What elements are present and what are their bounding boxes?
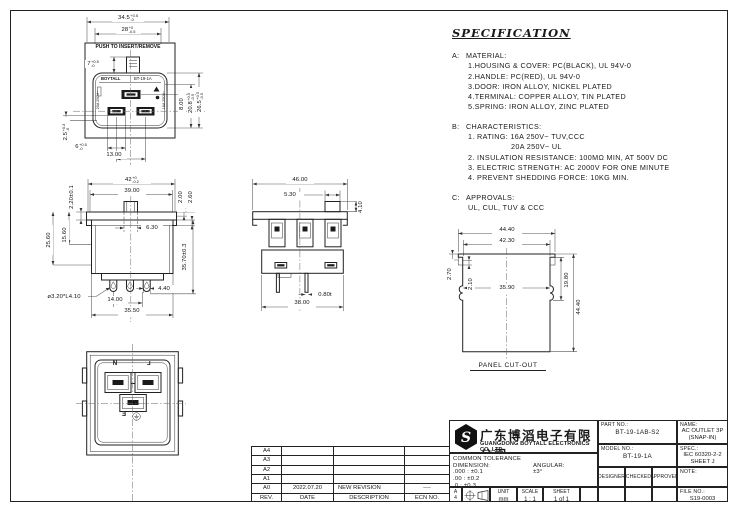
spec-cell: SPEC.: IEC 60320-2-2SHEET J bbox=[677, 444, 728, 467]
name-cell: NAME: AC OUTLET 3P(SNAP-IN) bbox=[677, 420, 728, 444]
file-no-cell: FILE NO.: S19-0003 bbox=[677, 487, 728, 502]
terminal-n bbox=[105, 373, 131, 393]
snap-tab bbox=[82, 368, 86, 383]
terminal-n-label: N bbox=[110, 361, 120, 367]
handle-tab bbox=[325, 202, 340, 212]
spec-section-characteristics: B:CHARACTERISTICS: 1. RATING: 16A 250V~ … bbox=[452, 122, 734, 184]
company-name-en: GUANGDONG BOYTALL ELECTRONICS CO.,LTD bbox=[480, 441, 597, 453]
rev-cell: A0 bbox=[251, 483, 281, 492]
revision-table: A4 A3 A2 A1 A02022.07.20NEW REVISION----… bbox=[251, 446, 449, 502]
dim-bottom-body-width: 38.00 bbox=[288, 300, 316, 308]
part-no-value: BT-19-1AB-S2 bbox=[599, 429, 676, 436]
spec-section-approvals: C:APPROVALS: UL, CUL, TUV & CCC bbox=[452, 193, 734, 214]
dim-cutout-inner-width: 42.30 bbox=[492, 237, 522, 245]
brand-label: BOYTALL bbox=[101, 76, 120, 81]
dim-cutout-notch: 2.70 bbox=[446, 259, 454, 289]
rev-cell: A1 bbox=[251, 474, 281, 483]
cert-mark-triangle bbox=[154, 87, 160, 92]
rev-cell: A2 bbox=[251, 465, 281, 474]
note-cell: NOTE: bbox=[677, 467, 728, 487]
rating-left-label: 20A 250V~ bbox=[96, 85, 100, 115]
dim-cutout-latch: 2.10 bbox=[467, 269, 475, 299]
dim-body-height: 35.70±0.3 bbox=[181, 238, 189, 276]
dim-edge-gap: 2.5+0.3-0 bbox=[62, 117, 70, 147]
dim-bottom-tab-height: 4.10 bbox=[357, 192, 365, 222]
body bbox=[262, 250, 344, 273]
angular-value: ±3° bbox=[533, 469, 542, 476]
specification-title: SPECIFICATION bbox=[452, 26, 734, 40]
unit-cell: UNITmm bbox=[490, 487, 517, 502]
dim-tab-width: 6.30 bbox=[141, 225, 163, 233]
dim-flange-thickness: 2.20±0.1 bbox=[68, 182, 76, 212]
dim-cutout-height: 44.40 bbox=[575, 291, 583, 323]
dim-pin-pitch: 14.00 bbox=[102, 296, 128, 304]
dim-cutout-outer-width: 44.40 bbox=[492, 226, 522, 234]
scale-cell: SCALE1 : 1 bbox=[517, 487, 543, 502]
terminal-l-label: L bbox=[144, 361, 154, 367]
dim-body-width: 35.50 bbox=[118, 308, 146, 316]
dim-slot-width: 6+0.5-0 bbox=[71, 143, 91, 151]
tolerance-title: COMMON TOLERANCE bbox=[453, 456, 597, 463]
designer-cell: DESIGNER bbox=[598, 467, 625, 487]
terminal-l bbox=[135, 373, 161, 393]
rear-view-drawing bbox=[70, 344, 192, 502]
approved-signature-cell bbox=[652, 487, 677, 502]
projection-symbol-cell bbox=[462, 487, 490, 502]
spec-line1: IEC 60320-2-2 bbox=[678, 452, 727, 459]
drawing-sheet: PUSH TO INSERT/REMOVE BOYTALL BT-19-1A 2… bbox=[0, 0, 738, 512]
projection-symbol-icon bbox=[463, 489, 490, 502]
sheet-cell: SHEET1 of 1 bbox=[543, 487, 580, 502]
dim-pin-size: ø3.20*L4.10 bbox=[40, 293, 88, 301]
dim-slot-offset: 8.00 bbox=[178, 89, 186, 119]
checked-signature-cell bbox=[625, 487, 652, 502]
ground-symbol bbox=[133, 413, 141, 421]
designer-signature-cell bbox=[598, 487, 625, 502]
push-to-insert-label: PUSH TO INSERT/REMOVE bbox=[95, 44, 161, 50]
panel-cutout-view: 44.40 42.30 2.70 2.10 35.90 19.80 44.40 … bbox=[442, 226, 594, 378]
name-line2: (SNAP-IN) bbox=[678, 435, 727, 442]
model-label: BT-19-1A bbox=[134, 76, 152, 81]
rev-header: REV. bbox=[251, 493, 281, 502]
name-line1: AC OUTLET 3P bbox=[678, 428, 727, 435]
socket-face bbox=[93, 73, 167, 128]
company-logo: S bbox=[453, 423, 479, 451]
rear-view: N L E bbox=[70, 344, 192, 502]
checked-cell: CHECKED bbox=[625, 467, 652, 487]
tolerance-cell: COMMON TOLERANCE DIMENSION:ANGULAR: .000… bbox=[449, 453, 598, 487]
dim-slot-pitch: 13.00 bbox=[101, 151, 127, 159]
terminal-leg bbox=[305, 273, 308, 292]
dim-face-inner-width: 28+0-0.5 bbox=[116, 26, 141, 34]
bottom-view: 46.00 5.30 4.10 0.80t 38.00 bbox=[248, 176, 374, 318]
flange bbox=[87, 212, 177, 220]
spec-line2: SHEET J bbox=[678, 459, 727, 466]
dim-cutout-latch-height: 19.80 bbox=[563, 264, 571, 296]
company-cell: S 广东博滔电子有限公司 GUANGDONG BOYTALL ELECTRONI… bbox=[449, 420, 598, 453]
rating-right-label: 16A 250V~ bbox=[162, 85, 166, 115]
strip-blank-cell bbox=[580, 487, 598, 502]
dim-terminal-thickness: 0.80t bbox=[312, 291, 338, 299]
model-no-cell: MODEL NO.: BT-19-1A bbox=[598, 444, 677, 467]
dim-face-height: 26.5+0.5-0.5 bbox=[196, 87, 204, 117]
terminal-e bbox=[120, 395, 147, 412]
contact-towers bbox=[269, 219, 341, 247]
spec-section-material: A:MATERIAL: 1.HOUSING & COVER: PC(BLACK)… bbox=[452, 51, 734, 113]
part-no-cell: PART NO.: BT-19-1AB-S2 bbox=[598, 420, 677, 444]
cert-mark-circle bbox=[156, 96, 160, 100]
dim-pin-width: 4.40 bbox=[154, 285, 174, 293]
dim-lip-b: 2.60 bbox=[187, 182, 195, 212]
paper-size-cell: A4 bbox=[449, 487, 462, 502]
dim-bottom-tab-width: 5.30 bbox=[279, 192, 301, 200]
dim-mid-height: 25.60 bbox=[45, 225, 53, 255]
angular-label: ANGULAR: bbox=[533, 463, 565, 470]
snap-tab bbox=[178, 368, 182, 383]
dim-flange-width: 39.00 bbox=[118, 187, 146, 195]
dim-bottom-top-width: 46.00 bbox=[286, 176, 314, 184]
ground-slot bbox=[122, 90, 141, 99]
panel-cutout-caption: PANEL CUT-OUT bbox=[470, 362, 546, 371]
dimension-label: DIMENSION: bbox=[453, 463, 490, 469]
svg-text:S: S bbox=[461, 430, 471, 446]
bottom-view-drawing bbox=[248, 176, 374, 318]
panel-cutout-drawing bbox=[442, 226, 594, 378]
dim-side-top-width: 42+0-0.2 bbox=[113, 176, 151, 184]
terminal-e-label: E bbox=[119, 412, 129, 418]
handle bbox=[127, 57, 140, 73]
dim-upper-height: 15.60 bbox=[61, 220, 69, 250]
approved-cell: APPROVED bbox=[652, 467, 677, 487]
dim-cutout-middle-width: 35.90 bbox=[492, 285, 522, 293]
specification-block: SPECIFICATION A:MATERIAL: 1.HOUSING & CO… bbox=[452, 26, 734, 222]
rev-cell: A4 bbox=[251, 446, 281, 455]
model-no-value: BT-19-1A bbox=[599, 453, 676, 460]
dim-opening-height: 20.8+0.5-0.5 bbox=[187, 88, 195, 118]
dim-lip-a: 2.00 bbox=[177, 182, 185, 212]
side-view: 42+0-0.2 39.00 2.20±0.1 2.00 2.60 15.60 … bbox=[38, 176, 204, 326]
dim-handle-height: 7+0.5-0 bbox=[85, 60, 101, 68]
face-view: PUSH TO INSERT/REMOVE BOYTALL BT-19-1A 2… bbox=[55, 14, 205, 166]
rev-cell: A3 bbox=[251, 455, 281, 464]
file-no-value: S19-0003 bbox=[678, 496, 727, 502]
dim-face-outer-width: 34.5+0.5-0 bbox=[112, 14, 144, 22]
